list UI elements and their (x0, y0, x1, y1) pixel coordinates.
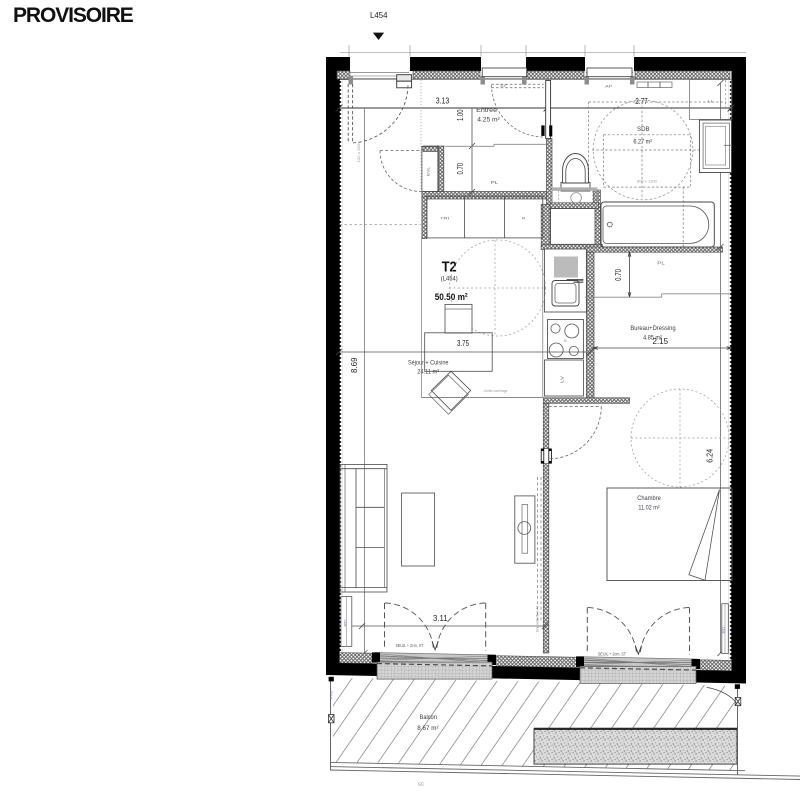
svg-text:0.70: 0.70 (614, 268, 623, 280)
svg-text:Limite carrelage: Limite carrelage (484, 389, 508, 393)
svg-text:PVE: PVE (330, 690, 334, 699)
svg-text:PVE: PVE (737, 698, 741, 707)
svg-text:L454: L454 (370, 11, 388, 20)
svg-text:0.70: 0.70 (456, 162, 465, 174)
svg-text:3.75: 3.75 (457, 339, 470, 348)
svg-text:RD: RD (722, 626, 726, 634)
svg-text:24.11 m²: 24.11 m² (417, 368, 439, 375)
svg-text:Chambre: Chambre (637, 495, 661, 502)
svg-text:6.27 m²: 6.27 m² (633, 138, 652, 145)
svg-text:R: R (522, 216, 526, 221)
svg-text:4.85 m²: 4.85 m² (643, 335, 662, 342)
svg-text:GC: GC (418, 782, 424, 787)
svg-text:1.00: 1.00 (456, 109, 465, 121)
svg-text:3.11: 3.11 (433, 614, 448, 623)
svg-text:Balcon: Balcon (420, 714, 438, 721)
svg-text:8.69: 8.69 (350, 357, 359, 373)
svg-text:120 x 205: 120 x 205 (357, 144, 361, 163)
svg-text:EVL: EVL (425, 166, 430, 176)
svg-text:RD: RD (344, 619, 348, 627)
svg-text:3.13: 3.13 (436, 96, 450, 105)
svg-text:Entrée: Entrée (476, 107, 497, 114)
svg-text:SEUIL + 2cm, ST: SEUIL + 2cm, ST (396, 643, 424, 648)
svg-text:AP: AP (605, 85, 613, 89)
svg-text:TRI: TRI (440, 215, 449, 220)
svg-text:Séjour + Cuisine: Séjour + Cuisine (408, 359, 449, 366)
svg-text:SEUIL + 2cm, ST: SEUIL + 2cm, ST (598, 651, 626, 656)
svg-text:LL: LL (708, 99, 714, 103)
svg-text:SDB: SDB (637, 126, 650, 133)
svg-text:8.67 m²: 8.67 m² (417, 725, 438, 732)
svg-text:G: G (564, 339, 567, 343)
svg-text:Imposte fixe M: Imposte fixe M (535, 606, 539, 632)
svg-text:4.25 m²: 4.25 m² (477, 117, 500, 124)
svg-text:LV: LV (560, 376, 565, 383)
svg-text:Bureau+Dressing: Bureau+Dressing (630, 325, 676, 332)
svg-text:11.02 m²: 11.02 m² (638, 504, 659, 511)
svg-text:(L454): (L454) (441, 276, 458, 282)
svg-text:PL: PL (491, 180, 499, 185)
svg-text:AF: AF (500, 84, 508, 88)
svg-text:6.24: 6.24 (705, 448, 714, 463)
svg-text:PL: PL (657, 260, 665, 265)
svg-text:2.77: 2.77 (635, 97, 648, 106)
svg-text:800 x 1300: 800 x 1300 (637, 179, 657, 183)
